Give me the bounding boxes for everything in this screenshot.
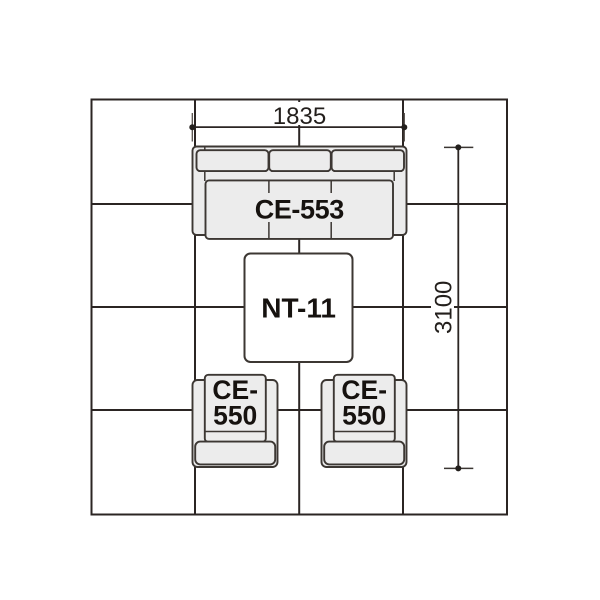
svg-text:CE-553: CE-553	[255, 194, 345, 224]
svg-text:550: 550	[213, 401, 257, 431]
svg-text:1835: 1835	[273, 103, 326, 130]
svg-text:3100: 3100	[431, 281, 458, 334]
svg-text:NT-11: NT-11	[261, 292, 336, 323]
svg-text:550: 550	[342, 401, 386, 431]
